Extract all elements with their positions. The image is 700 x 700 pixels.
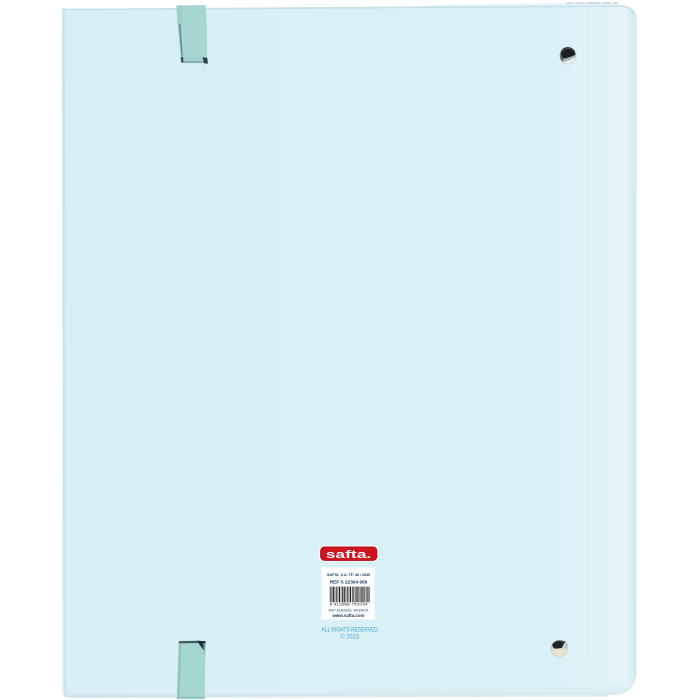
svg-text:www.safta.com: www.safta.com xyxy=(332,613,365,618)
svg-text:© 2023: © 2023 xyxy=(340,634,359,641)
svg-text:REF S 22304 906: REF S 22304 906 xyxy=(330,579,368,584)
svg-text:SAFTA, S.A. TF: 46 / 2845: SAFTA, S.A. TF: 46 / 2845 xyxy=(327,573,370,577)
svg-text:ANTº ALAGUAS, VALENCIA: ANTº ALAGUAS, VALENCIA xyxy=(329,608,370,612)
svg-text:ALL RIGHTS RESERVED.: ALL RIGHTS RESERVED. xyxy=(322,626,380,633)
svg-text:safta.: safta. xyxy=(326,548,372,561)
svg-text:8 412688 751034: 8 412688 751034 xyxy=(330,602,368,606)
